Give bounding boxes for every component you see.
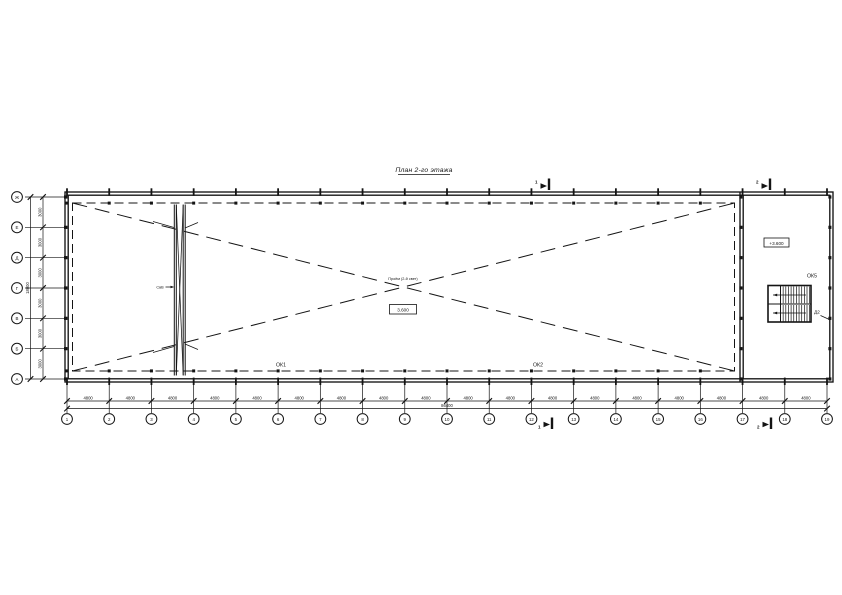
column-mark bbox=[403, 369, 406, 372]
bay-dimension: 4800 bbox=[295, 396, 305, 401]
window-label-ok5: ОК5 bbox=[807, 274, 817, 280]
bay-dimension: 3000 bbox=[37, 268, 42, 278]
section-mark-top-right: 2 bbox=[756, 179, 770, 191]
floor-plan-canvas: План 2-го этажа СвВ Проём (2-й свет) 3.6… bbox=[0, 0, 842, 595]
column-mark bbox=[64, 226, 67, 229]
grid-bubble-label: 12 bbox=[529, 417, 534, 422]
section-mark-bottom-right: 2 bbox=[757, 418, 771, 430]
column-mark bbox=[277, 202, 280, 205]
column-mark bbox=[488, 202, 491, 205]
grid-bubble-label: 14 bbox=[613, 417, 618, 422]
column-mark bbox=[828, 317, 831, 320]
column-mark bbox=[739, 256, 742, 259]
window-label-ok1: ОК1 bbox=[276, 363, 286, 369]
column-mark bbox=[614, 369, 617, 372]
section-label: 1 bbox=[535, 180, 538, 185]
column-mark bbox=[614, 202, 617, 205]
column-mark bbox=[234, 369, 237, 372]
column-mark bbox=[403, 202, 406, 205]
stair-level-value: +3.600 bbox=[769, 241, 784, 246]
door-label: Д2 bbox=[814, 310, 820, 315]
total-dimension: 18000 bbox=[25, 282, 30, 294]
column-mark bbox=[657, 202, 660, 205]
bay-dimension: 4800 bbox=[421, 396, 431, 401]
bay-dimension: 3000 bbox=[37, 237, 42, 247]
grid-bubble-label: 15 bbox=[656, 417, 661, 422]
column-mark bbox=[657, 369, 660, 372]
bay-dimension: 4800 bbox=[801, 396, 811, 401]
column-mark bbox=[828, 226, 831, 229]
column-mark bbox=[64, 377, 67, 380]
column-mark bbox=[277, 369, 280, 372]
grid-bubble-label: В bbox=[16, 316, 19, 321]
column-mark bbox=[66, 202, 69, 205]
bay-dimension: 4800 bbox=[548, 396, 558, 401]
column-mark bbox=[319, 369, 322, 372]
window-label-ok2: ОК2 bbox=[533, 363, 543, 369]
column-mark bbox=[150, 369, 153, 372]
bay-dimension: 4800 bbox=[590, 396, 600, 401]
grid-bubble-label: 19 bbox=[825, 417, 830, 422]
grid-bubble-label: Ж bbox=[15, 195, 19, 200]
grid-bubble-label: 17 bbox=[740, 417, 745, 422]
column-mark bbox=[108, 202, 111, 205]
bay-dimension: 4800 bbox=[252, 396, 262, 401]
vertical-brace: СвВ bbox=[153, 205, 198, 376]
column-mark bbox=[64, 256, 67, 259]
column-mark bbox=[488, 369, 491, 372]
total-dimension: 86400 bbox=[441, 403, 453, 408]
grid-bubble-label: Е bbox=[16, 225, 19, 230]
bay-dimension: 3000 bbox=[37, 298, 42, 308]
bay-dimension: 3000 bbox=[37, 207, 42, 217]
brace-label: СвВ bbox=[156, 286, 164, 290]
column-mark bbox=[828, 256, 831, 259]
bay-dimension: 4800 bbox=[168, 396, 178, 401]
grid-bubble-label: 10 bbox=[445, 417, 450, 422]
bay-dimension: 4800 bbox=[717, 396, 727, 401]
column-mark bbox=[530, 202, 533, 205]
bay-dimension: 4800 bbox=[210, 396, 220, 401]
section-label: 2 bbox=[756, 180, 759, 185]
column-mark bbox=[739, 347, 742, 350]
bay-dimension: 3000 bbox=[37, 359, 42, 369]
column-mark bbox=[64, 195, 67, 198]
section-label: 1 bbox=[538, 425, 541, 430]
grid-bubble-label: Б bbox=[16, 346, 19, 351]
grid-bubble-label: 11 bbox=[487, 417, 492, 422]
bay-dimension: 4800 bbox=[337, 396, 347, 401]
column-mark bbox=[828, 286, 831, 289]
door-mark: Д2 bbox=[814, 310, 830, 321]
column-mark bbox=[192, 202, 195, 205]
bay-dimension: 4800 bbox=[759, 396, 769, 401]
grid-bubble-label: Д bbox=[16, 255, 19, 260]
column-mark bbox=[530, 369, 533, 372]
column-mark bbox=[828, 347, 831, 350]
drawing-sheet: План 2-го этажа СвВ Проём (2-й свет) 3.6… bbox=[0, 0, 842, 595]
axis-grids-and-dimensions: 1480024800348004480054800648007480084800… bbox=[12, 188, 833, 424]
bay-dimension: 4800 bbox=[379, 396, 389, 401]
column-mark bbox=[150, 202, 153, 205]
hall-level-mark: 3.600 bbox=[390, 305, 417, 315]
section-mark-top-left: 1 bbox=[535, 179, 549, 191]
center-note: Проём (2-й свет) bbox=[388, 277, 418, 281]
bay-dimension: 4800 bbox=[632, 396, 642, 401]
plan-title: План 2-го этажа bbox=[395, 167, 452, 174]
column-mark bbox=[192, 369, 195, 372]
bay-dimension: 4800 bbox=[506, 396, 516, 401]
section-label: 2 bbox=[757, 425, 760, 430]
stair-level-mark: +3.600 bbox=[764, 238, 789, 247]
hall-level-value: 3.600 bbox=[397, 307, 409, 312]
column-mark bbox=[572, 202, 575, 205]
column-mark bbox=[234, 202, 237, 205]
column-mark bbox=[446, 202, 449, 205]
column-mark bbox=[699, 202, 702, 205]
column-mark bbox=[108, 369, 111, 372]
column-mark bbox=[319, 202, 322, 205]
grid-bubble-label: А bbox=[16, 377, 19, 382]
column-mark bbox=[739, 377, 742, 380]
column-mark bbox=[361, 369, 364, 372]
bay-dimension: 3000 bbox=[37, 328, 42, 338]
column-mark bbox=[64, 347, 67, 350]
bay-dimension: 4800 bbox=[675, 396, 685, 401]
column-mark bbox=[572, 369, 575, 372]
column-mark bbox=[828, 377, 831, 380]
column-mark bbox=[66, 369, 69, 372]
column-mark bbox=[64, 286, 67, 289]
bay-dimension: 4800 bbox=[463, 396, 473, 401]
column-mark bbox=[739, 286, 742, 289]
grid-bubble-label: 18 bbox=[782, 417, 787, 422]
bay-dimension: 4800 bbox=[126, 396, 136, 401]
column-mark bbox=[361, 202, 364, 205]
section-mark-bottom-left: 1 bbox=[538, 418, 552, 430]
column-mark bbox=[699, 369, 702, 372]
column-mark bbox=[64, 317, 67, 320]
grid-bubble-label: 16 bbox=[698, 417, 703, 422]
column-mark bbox=[739, 195, 742, 198]
column-mark bbox=[739, 317, 742, 320]
column-mark bbox=[446, 369, 449, 372]
column-mark bbox=[828, 195, 831, 198]
column-mark bbox=[739, 226, 742, 229]
stairwell bbox=[768, 286, 811, 323]
bay-dimension: 4800 bbox=[83, 396, 93, 401]
grid-bubble-label: 13 bbox=[571, 417, 576, 422]
